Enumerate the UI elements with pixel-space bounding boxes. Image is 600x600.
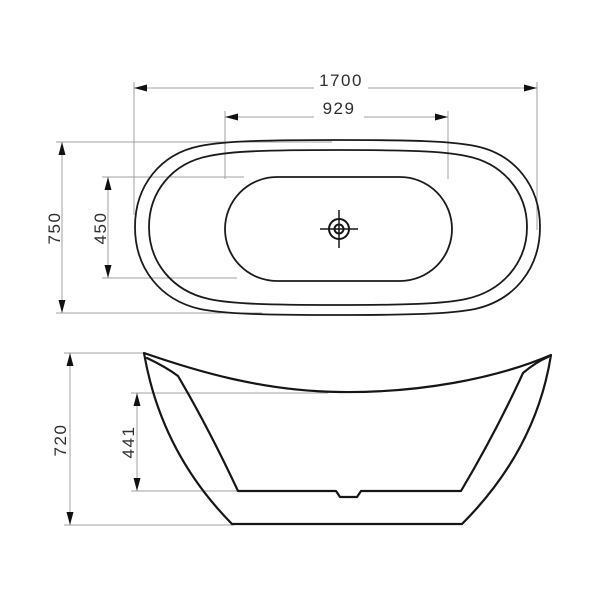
dimension-inner-depth: 441: [119, 393, 141, 491]
arrowhead-up: [59, 142, 66, 155]
dim-label-inner-depth: 441: [119, 426, 138, 459]
arrowhead-down: [67, 512, 74, 525]
side-view-extension-lines: [64, 353, 328, 525]
arrowhead-down: [105, 265, 112, 278]
arrowhead-left: [225, 114, 238, 121]
technical-drawing-canvas: 1700 929 750 450: [0, 0, 600, 600]
dim-label-overall-length: 1700: [319, 71, 363, 90]
tub-side-inner-profile: [147, 357, 548, 497]
arrowhead-up: [105, 177, 112, 190]
dimension-inner-width: 450: [91, 177, 112, 278]
drawing-page: 1700 929 750 450: [0, 0, 600, 600]
arrowhead-right: [435, 114, 448, 121]
drain-crosshair-icon: [320, 210, 358, 248]
dimension-inner-length: 929: [225, 99, 448, 121]
arrowhead-down: [59, 300, 66, 313]
dimension-overall-width: 750: [45, 142, 66, 313]
arrowhead-right: [524, 85, 537, 92]
dimension-overall-length: 1700: [134, 71, 537, 92]
dim-label-inner-length: 929: [323, 99, 356, 118]
dimension-overall-height: 720: [51, 353, 74, 525]
dim-label-overall-height: 720: [51, 424, 70, 457]
side-view: 720 441: [51, 353, 551, 525]
arrowhead-down: [134, 478, 141, 491]
top-view: 1700 929 750 450: [45, 71, 540, 315]
dim-label-inner-width: 450: [91, 212, 110, 245]
dim-label-overall-width: 750: [45, 212, 64, 245]
arrowhead-up: [134, 393, 141, 406]
tub-outer-rim-outline: [135, 140, 540, 315]
arrowhead-up: [67, 353, 74, 366]
arrowhead-left: [134, 85, 147, 92]
